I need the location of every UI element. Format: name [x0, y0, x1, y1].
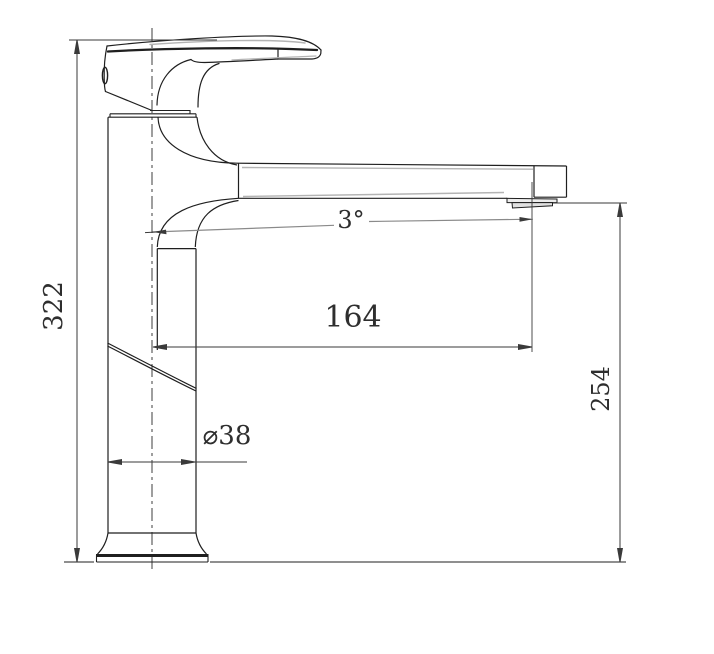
dim-164-arrow-left: [153, 345, 167, 350]
dim-322-arrow-down: [75, 549, 80, 563]
dim-overall-height: [69, 40, 217, 562]
dim-d38-arrow-left: [108, 460, 122, 465]
fillet-lower-outer: [157, 198, 238, 247]
arm-top-shade: [242, 168, 533, 170]
arm-top-edge: [237, 163, 567, 166]
technical-drawing-canvas: 322 164 254 ⌀38 3°: [0, 0, 714, 654]
handle-top-band: [108, 48, 317, 51]
base-flare-left: [98, 533, 109, 554]
label-spout-reach: 164: [324, 303, 381, 333]
dim-3deg-arrow-right: [520, 217, 534, 222]
dim-322-arrow-up: [75, 40, 80, 54]
faucet-handle: [102, 36, 321, 111]
label-spout-outlet-height: 254: [589, 366, 613, 412]
label-spout-angle: 3°: [337, 208, 364, 232]
label-overall-height: 322: [41, 281, 67, 331]
fillet-lower-inner: [195, 201, 238, 248]
spout-arm: [237, 163, 567, 198]
dim-254-arrow-up: [618, 203, 623, 217]
handle-dome-slant: [106, 92, 153, 111]
handle-side-button: [102, 67, 107, 83]
base-flare-right: [196, 533, 207, 554]
label-body-diameter: ⌀38: [203, 423, 252, 449]
neck-outer-curve: [157, 60, 191, 106]
dim-body-diameter: [108, 460, 247, 465]
faucet-body: [108, 117, 239, 533]
dim-3deg-line-left: [153, 225, 335, 232]
fillet-upper-inner: [197, 117, 237, 165]
dim-3deg-line-right: [369, 219, 533, 221]
dim-164-arrow-right: [519, 345, 533, 350]
dim-d38-arrow-right: [182, 460, 196, 465]
handle-top-shade: [150, 40, 305, 44]
arm-bottom-shade: [243, 193, 504, 197]
neck-inner-curve: [198, 64, 219, 108]
dim-254-arrow-down: [618, 549, 623, 563]
